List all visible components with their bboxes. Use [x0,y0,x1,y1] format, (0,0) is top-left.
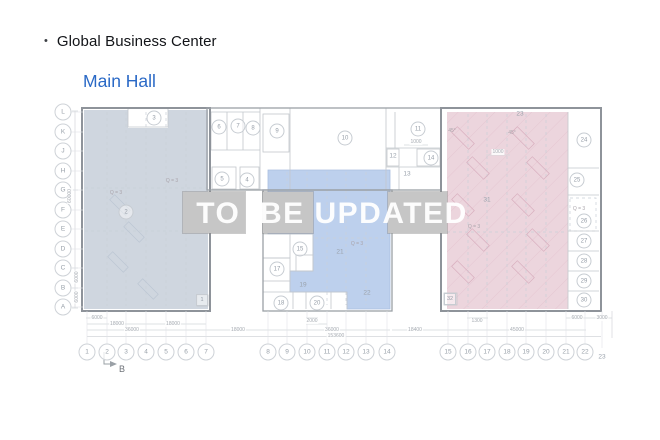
room-number: 3 [147,111,162,126]
room-number: 27 [577,234,592,249]
plan-annotation: 45° [508,130,516,136]
masked-area [388,192,447,233]
grid-column-label: 16 [460,344,477,361]
room-number: 22 [363,290,370,297]
dimension-label: 36000 [324,327,340,333]
room-number: 6 [212,120,227,135]
dimension-label: 2000 [305,318,318,324]
dimension-label: 1300 [470,318,483,324]
grid-row-label: B [55,280,72,297]
dimension-label: 6000 [570,315,583,321]
grid-column-label: 10 [299,344,316,361]
grid-row-label: L [55,104,72,121]
room-number: 30 [577,293,592,308]
dimension-label: 18000 [230,327,246,333]
room-number: 4 [240,173,255,188]
grid-row-label: E [55,221,72,238]
grid-column-label: 23 [598,354,605,361]
room-number: 29 [577,274,592,289]
dimension-label: 6000 [90,315,103,321]
dimension-label: 60000 [67,188,73,204]
grid-column-label: 18 [499,344,516,361]
grid-column-label: 14 [379,344,396,361]
dimension-label: 45000 [509,327,525,333]
room-number: 32 [444,293,456,305]
plan-annotation: Q = 3 [468,224,480,230]
grid-column-label: 15 [440,344,457,361]
grid-column-label: 1 [79,344,96,361]
grid-column-label: 19 [518,344,535,361]
room-number: 15 [293,242,308,257]
plan-annotation: Q = 3 [351,241,363,247]
room-number: 11 [411,122,426,137]
room-number: 13 [403,171,410,178]
section-marker-label: B [119,364,125,374]
room-number: 26 [577,214,592,229]
grid-row-label: A [55,299,72,316]
grid-row-label: F [55,202,72,219]
room-number: 28 [577,254,592,269]
grid-column-label: 4 [138,344,155,361]
room-number: 7 [231,119,246,134]
grid-column-label: 21 [558,344,575,361]
room-number: 25 [570,173,585,188]
dimension-label: 3000 [595,315,608,321]
room-number: 31 [483,197,490,204]
plan-annotation: Q = 3 [166,178,178,184]
room-number: 9 [270,124,285,139]
app-window: • Global Business Center Main Hall [0,0,660,440]
room-number: 23 [516,111,523,118]
plan-annotation: Q = 3 [110,190,122,196]
grid-row-label: H [55,163,72,180]
room-number: 20 [310,296,325,311]
grid-column-label: 3 [118,344,135,361]
grid-column-label: 12 [338,344,355,361]
room-number: 17 [270,262,285,277]
grid-row-label: J [55,143,72,160]
dimension-label: 1000 [409,139,422,145]
grid-column-label: 2 [99,344,116,361]
dimension-label: 153600 [327,333,346,339]
grid-row-label: C [55,260,72,277]
room-number: 24 [577,133,592,148]
room-number: 14 [424,151,439,166]
dimension-label: 36000 [124,327,140,333]
dimension-label: 18000 [165,321,181,327]
dimension-label: 1000 [491,149,504,155]
grid-column-label: 7 [198,344,215,361]
room-number: 8 [246,121,261,136]
masked-area [263,192,313,233]
room-number: 5 [215,172,230,187]
grid-row-label: D [55,241,72,258]
grid-row-label: K [55,124,72,141]
grid-column-label: 22 [577,344,594,361]
room-number: 21 [336,249,343,256]
grid-column-label: 17 [479,344,496,361]
grid-column-label: 8 [260,344,277,361]
room-number: 12 [389,153,396,160]
grid-row-label: G [55,182,72,199]
room-number: 1 [196,294,208,306]
grid-column-label: 5 [158,344,175,361]
room-number: 18 [274,296,289,311]
plan-annotation: 45° [448,128,456,134]
room-number: 10 [338,131,353,146]
room-number: 2 [119,205,134,220]
room-number: 19 [299,282,306,289]
dimension-label: 6000 [74,270,80,283]
dimension-label: 18000 [109,321,125,327]
grid-column-label: 13 [358,344,375,361]
grid-column-label: 6 [178,344,195,361]
grid-column-label: 20 [538,344,555,361]
floor-plan: LKJHGFEDCBA12345678910111213141516171819… [0,0,660,440]
masked-area [183,192,245,233]
dimension-label: 18400 [407,327,423,333]
dimension-label: 6000 [74,290,80,303]
grid-column-label: 9 [279,344,296,361]
plan-annotation: Q = 3 [573,206,585,212]
plan-labels: LKJHGFEDCBA12345678910111213141516171819… [0,0,660,440]
grid-column-label: 11 [319,344,336,361]
